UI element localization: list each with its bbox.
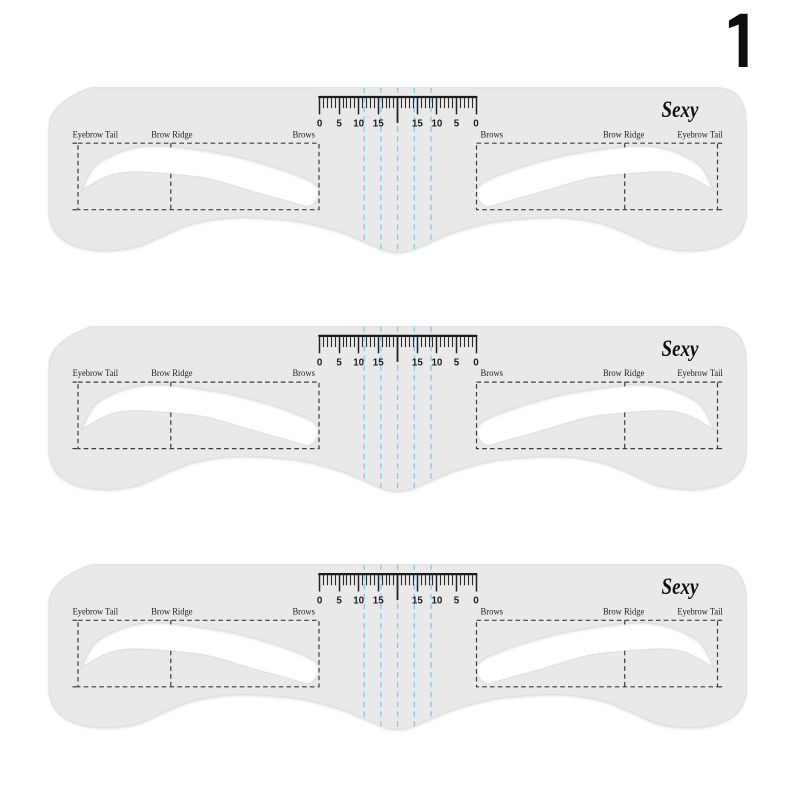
svg-text:5: 5 (336, 596, 342, 607)
svg-text:15: 15 (412, 118, 423, 129)
svg-text:5: 5 (454, 118, 460, 129)
svg-text:Brows: Brows (292, 606, 315, 617)
svg-text:15: 15 (373, 596, 384, 607)
svg-text:5: 5 (336, 118, 342, 129)
svg-text:15: 15 (412, 357, 423, 368)
svg-text:0: 0 (473, 596, 479, 607)
svg-text:Eyebrow Tail: Eyebrow Tail (677, 368, 723, 379)
svg-text:Brows: Brows (292, 368, 315, 379)
svg-text:Sexy: Sexy (662, 574, 700, 599)
svg-text:Brow Ridge: Brow Ridge (151, 129, 192, 140)
svg-text:5: 5 (454, 357, 460, 368)
svg-text:5: 5 (454, 596, 460, 607)
svg-text:Brows: Brows (481, 606, 504, 617)
svg-text:Brows: Brows (481, 368, 504, 379)
svg-text:Brows: Brows (292, 129, 315, 140)
svg-text:Sexy: Sexy (662, 336, 700, 361)
svg-text:Brow Ridge: Brow Ridge (151, 368, 192, 379)
svg-text:Eyebrow Tail: Eyebrow Tail (73, 129, 119, 140)
svg-text:Eyebrow Tail: Eyebrow Tail (73, 606, 119, 617)
svg-text:15: 15 (412, 596, 423, 607)
svg-text:Brow Ridge: Brow Ridge (603, 606, 644, 617)
svg-text:10: 10 (431, 118, 442, 129)
svg-text:10: 10 (353, 596, 364, 607)
svg-text:5: 5 (336, 357, 342, 368)
svg-text:Eyebrow Tail: Eyebrow Tail (73, 368, 119, 379)
svg-text:10: 10 (353, 118, 364, 129)
svg-text:Sexy: Sexy (662, 97, 700, 122)
svg-text:Eyebrow Tail: Eyebrow Tail (677, 606, 723, 617)
svg-text:Brow Ridge: Brow Ridge (603, 129, 644, 140)
svg-text:0: 0 (473, 118, 479, 129)
svg-text:10: 10 (431, 596, 442, 607)
svg-text:0: 0 (317, 596, 323, 607)
svg-text:10: 10 (431, 357, 442, 368)
svg-text:0: 0 (317, 357, 323, 368)
svg-text:10: 10 (353, 357, 364, 368)
svg-text:Brows: Brows (481, 129, 504, 140)
svg-text:0: 0 (473, 357, 479, 368)
svg-text:15: 15 (373, 357, 384, 368)
svg-text:Brow Ridge: Brow Ridge (603, 368, 644, 379)
svg-text:15: 15 (373, 118, 384, 129)
svg-text:0: 0 (317, 118, 323, 129)
svg-text:Eyebrow Tail: Eyebrow Tail (677, 129, 723, 140)
svg-text:Brow Ridge: Brow Ridge (151, 606, 192, 617)
